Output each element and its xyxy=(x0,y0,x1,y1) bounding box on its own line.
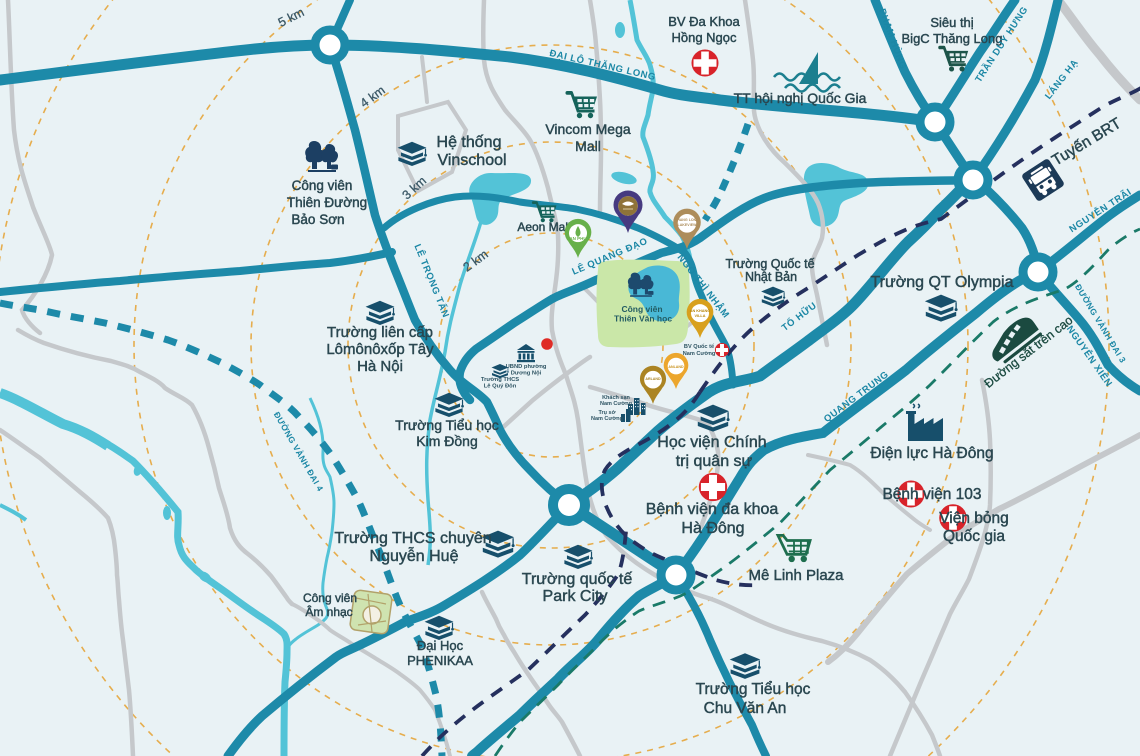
svg-text:Mê Linh Plaza: Mê Linh Plaza xyxy=(748,567,844,584)
svg-text:Âm nhạc: Âm nhạc xyxy=(305,604,352,619)
svg-text:Công viên: Công viên xyxy=(292,178,353,193)
svg-text:Vinschool: Vinschool xyxy=(437,152,506,169)
svg-text:Aeon Mall: Aeon Mall xyxy=(517,220,570,234)
svg-text:Trường Tiểu học: Trường Tiểu học xyxy=(395,417,499,433)
svg-text:Đại Học: Đại Học xyxy=(417,638,464,653)
svg-text:THANG LONG: THANG LONG xyxy=(675,218,699,222)
svg-text:ANLAND: ANLAND xyxy=(668,365,684,369)
svg-text:AN PHU: AN PHU xyxy=(569,236,586,241)
svg-text:Nguyễn Huệ: Nguyễn Huệ xyxy=(370,546,459,565)
svg-text:BV Đa Khoa: BV Đa Khoa xyxy=(668,14,740,29)
svg-text:Trường THCS: Trường THCS xyxy=(481,377,519,383)
svg-text:Thiên Văn học: Thiên Văn học xyxy=(614,314,672,324)
svg-text:Trường Quốc tế: Trường Quốc tế xyxy=(725,257,814,271)
svg-text:Hà Nội: Hà Nội xyxy=(357,358,403,375)
svg-text:Mall: Mall xyxy=(575,138,601,154)
svg-text:Dương Nội: Dương Nội xyxy=(511,371,542,377)
svg-text:Công viên: Công viên xyxy=(621,304,662,314)
svg-text:Lê Quý Đôn: Lê Quý Đôn xyxy=(484,384,517,390)
svg-text:Park City: Park City xyxy=(543,588,608,605)
svg-text:LAKEVIEW: LAKEVIEW xyxy=(678,223,698,227)
svg-text:Nam Cường: Nam Cường xyxy=(600,401,632,407)
svg-text:Nam Cường: Nam Cường xyxy=(591,416,623,422)
svg-text:Nam Cường: Nam Cường xyxy=(683,351,716,357)
svg-text:Siêu thị: Siêu thị xyxy=(930,15,973,30)
svg-text:VILLA: VILLA xyxy=(695,314,706,318)
svg-text:TT hội nghị Quốc Gia: TT hội nghị Quốc Gia xyxy=(734,90,867,106)
svg-text:UBND phường: UBND phường xyxy=(506,364,547,370)
svg-text:Quốc gia: Quốc gia xyxy=(943,528,1005,545)
svg-text:Thiên Đường: Thiên Đường xyxy=(287,195,367,210)
svg-text:Trường quốc tế: Trường quốc tế xyxy=(522,571,633,588)
svg-text:Hà Đông: Hà Đông xyxy=(681,520,744,537)
svg-text:Hệ thống: Hệ thống xyxy=(437,134,502,151)
svg-text:Bệnh viện đa khoa: Bệnh viện đa khoa xyxy=(646,501,779,518)
svg-text:Nhật Bản: Nhật Bản xyxy=(745,270,797,284)
svg-text:AN KHANG: AN KHANG xyxy=(690,309,711,313)
svg-text:Trường THCS chuyên: Trường THCS chuyên xyxy=(334,530,491,547)
svg-text:Kim Đồng: Kim Đồng xyxy=(416,433,477,449)
svg-text:BigC Thăng Long: BigC Thăng Long xyxy=(902,31,1003,46)
svg-text:trị quân sự: trị quân sự xyxy=(676,453,753,470)
svg-text:Công viên: Công viên xyxy=(303,591,357,605)
svg-text:Vincom Mega: Vincom Mega xyxy=(545,121,631,137)
svg-text:Bảo Sơn: Bảo Sơn xyxy=(291,212,344,227)
svg-text:Viện bỏng: Viện bỏng xyxy=(939,510,1009,527)
svg-text:Điện lực Hà Đông: Điện lực Hà Đông xyxy=(870,445,993,462)
svg-text:Lômônôxốp Tây: Lômônôxốp Tây xyxy=(326,341,434,358)
svg-text:Trường Tiểu học: Trường Tiểu học xyxy=(696,681,811,698)
svg-text:Chu Văn An: Chu Văn An xyxy=(704,700,787,717)
svg-text:Học viện Chính: Học viện Chính xyxy=(657,434,766,451)
svg-text:PHENIKAA: PHENIKAA xyxy=(407,653,473,668)
svg-text:Bệnh viện 103: Bệnh viện 103 xyxy=(882,486,981,503)
svg-text:Trường liên cấp: Trường liên cấp xyxy=(327,324,433,341)
svg-text:BV Quốc tế: BV Quốc tế xyxy=(684,343,715,350)
svg-text:ARLAND: ARLAND xyxy=(645,377,661,381)
svg-text:Hồng Ngọc: Hồng Ngọc xyxy=(671,30,737,45)
svg-text:Trường QT Olympia: Trường QT Olympia xyxy=(870,274,1013,291)
